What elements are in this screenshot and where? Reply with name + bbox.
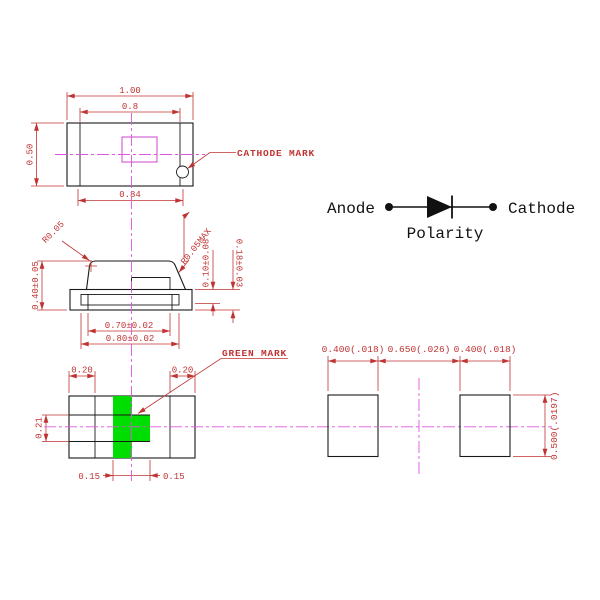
bottom-view: 0.20 0.20 0.21 0.15 0.15 GREEN MARK [35,348,289,482]
die-outline [122,137,157,162]
dim-inner-width-value: 0.8 [122,102,138,112]
dim-outer-base-width-value: 0.80±0.02 [106,334,155,344]
dim-inner-width: 0.8 [80,102,180,122]
radius-center-cross [85,260,97,272]
cathode-mark-callout: CATHODE MARK [188,148,316,169]
dim-mark-right-value: 0.15 [163,472,185,482]
dim-mark-left-value: 0.15 [78,472,100,482]
dim-inner-base-width-value: 0.70±0.02 [105,321,154,331]
dim-bottom-terminal-right-value: 0.20 [172,366,194,376]
dim-bottom-terminal-left: 0.20 [69,366,95,394]
polarity-diagram: Anode Cathode Polarity [327,196,575,244]
dim-pitch-value: 0.650(.026) [388,344,451,355]
base-inner [81,295,179,306]
dim-base-thickness-value: 0.18±0.03 [234,239,244,288]
solder-pad-right [460,395,510,457]
dim-pad-right-value: 0.400(.018) [454,344,517,355]
diode-triangle-icon [427,196,452,218]
cathode-label: Cathode [508,200,575,218]
top-view: 1.00 0.8 0.84 0.50 CATHODE MARK [26,86,316,206]
lens-profile [87,261,186,290]
dim-total-height: 0.40±0.05 [31,261,91,310]
solder-pad-left [328,395,378,457]
dim-terminal-span-value: 0.84 [119,190,141,200]
polarity-caption: Polarity [407,225,484,243]
dim-body-width-value: 1.00 [119,86,141,96]
datasheet-page: 1.00 0.8 0.84 0.50 CATHODE MARK [0,0,600,600]
cathode-mark-label: CATHODE MARK [237,148,315,159]
pad-layout: 0.400(.018) 0.650(.026) 0.400(.018) 0.50… [322,344,560,460]
green-mark-callout: GREEN MARK [138,348,288,414]
dim-pad-height: 0.500(.0197) [513,392,560,460]
callout-corner-radius: R0.05 [40,219,89,260]
cathode-dot [489,203,497,211]
dim-mark-height-value: 0.21 [35,417,45,439]
side-view: R0.05 R0.05MAX 0.40±0.05 0.10±0.08 0.18±… [31,212,244,349]
green-mark-bump [132,415,150,442]
dim-bottom-terminal-right: 0.20 [170,366,195,394]
dim-bottom-terminal-left-value: 0.20 [71,366,93,376]
dim-electrode-thickness-value: 0.10±0.08 [202,239,212,288]
dim-pad-left-value: 0.400(.018) [322,344,385,355]
dim-body-height-value: 0.50 [26,144,36,166]
dim-total-height-value: 0.40±0.05 [31,261,41,310]
led-package-drawing: 1.00 0.8 0.84 0.50 CATHODE MARK [0,0,600,600]
green-mark-label: GREEN MARK [222,348,287,359]
anode-label: Anode [327,200,375,218]
dim-terminal-span: 0.84 [78,189,183,206]
cathode-mark-notch [177,166,189,178]
dim-mark-height: 0.21 [35,415,70,442]
dim-pad-height-value: 0.500(.0197) [549,392,560,460]
lens-step [132,278,171,290]
dim-inner-base-width: 0.70±0.02 [88,313,170,336]
base-feet-lines [88,295,172,311]
